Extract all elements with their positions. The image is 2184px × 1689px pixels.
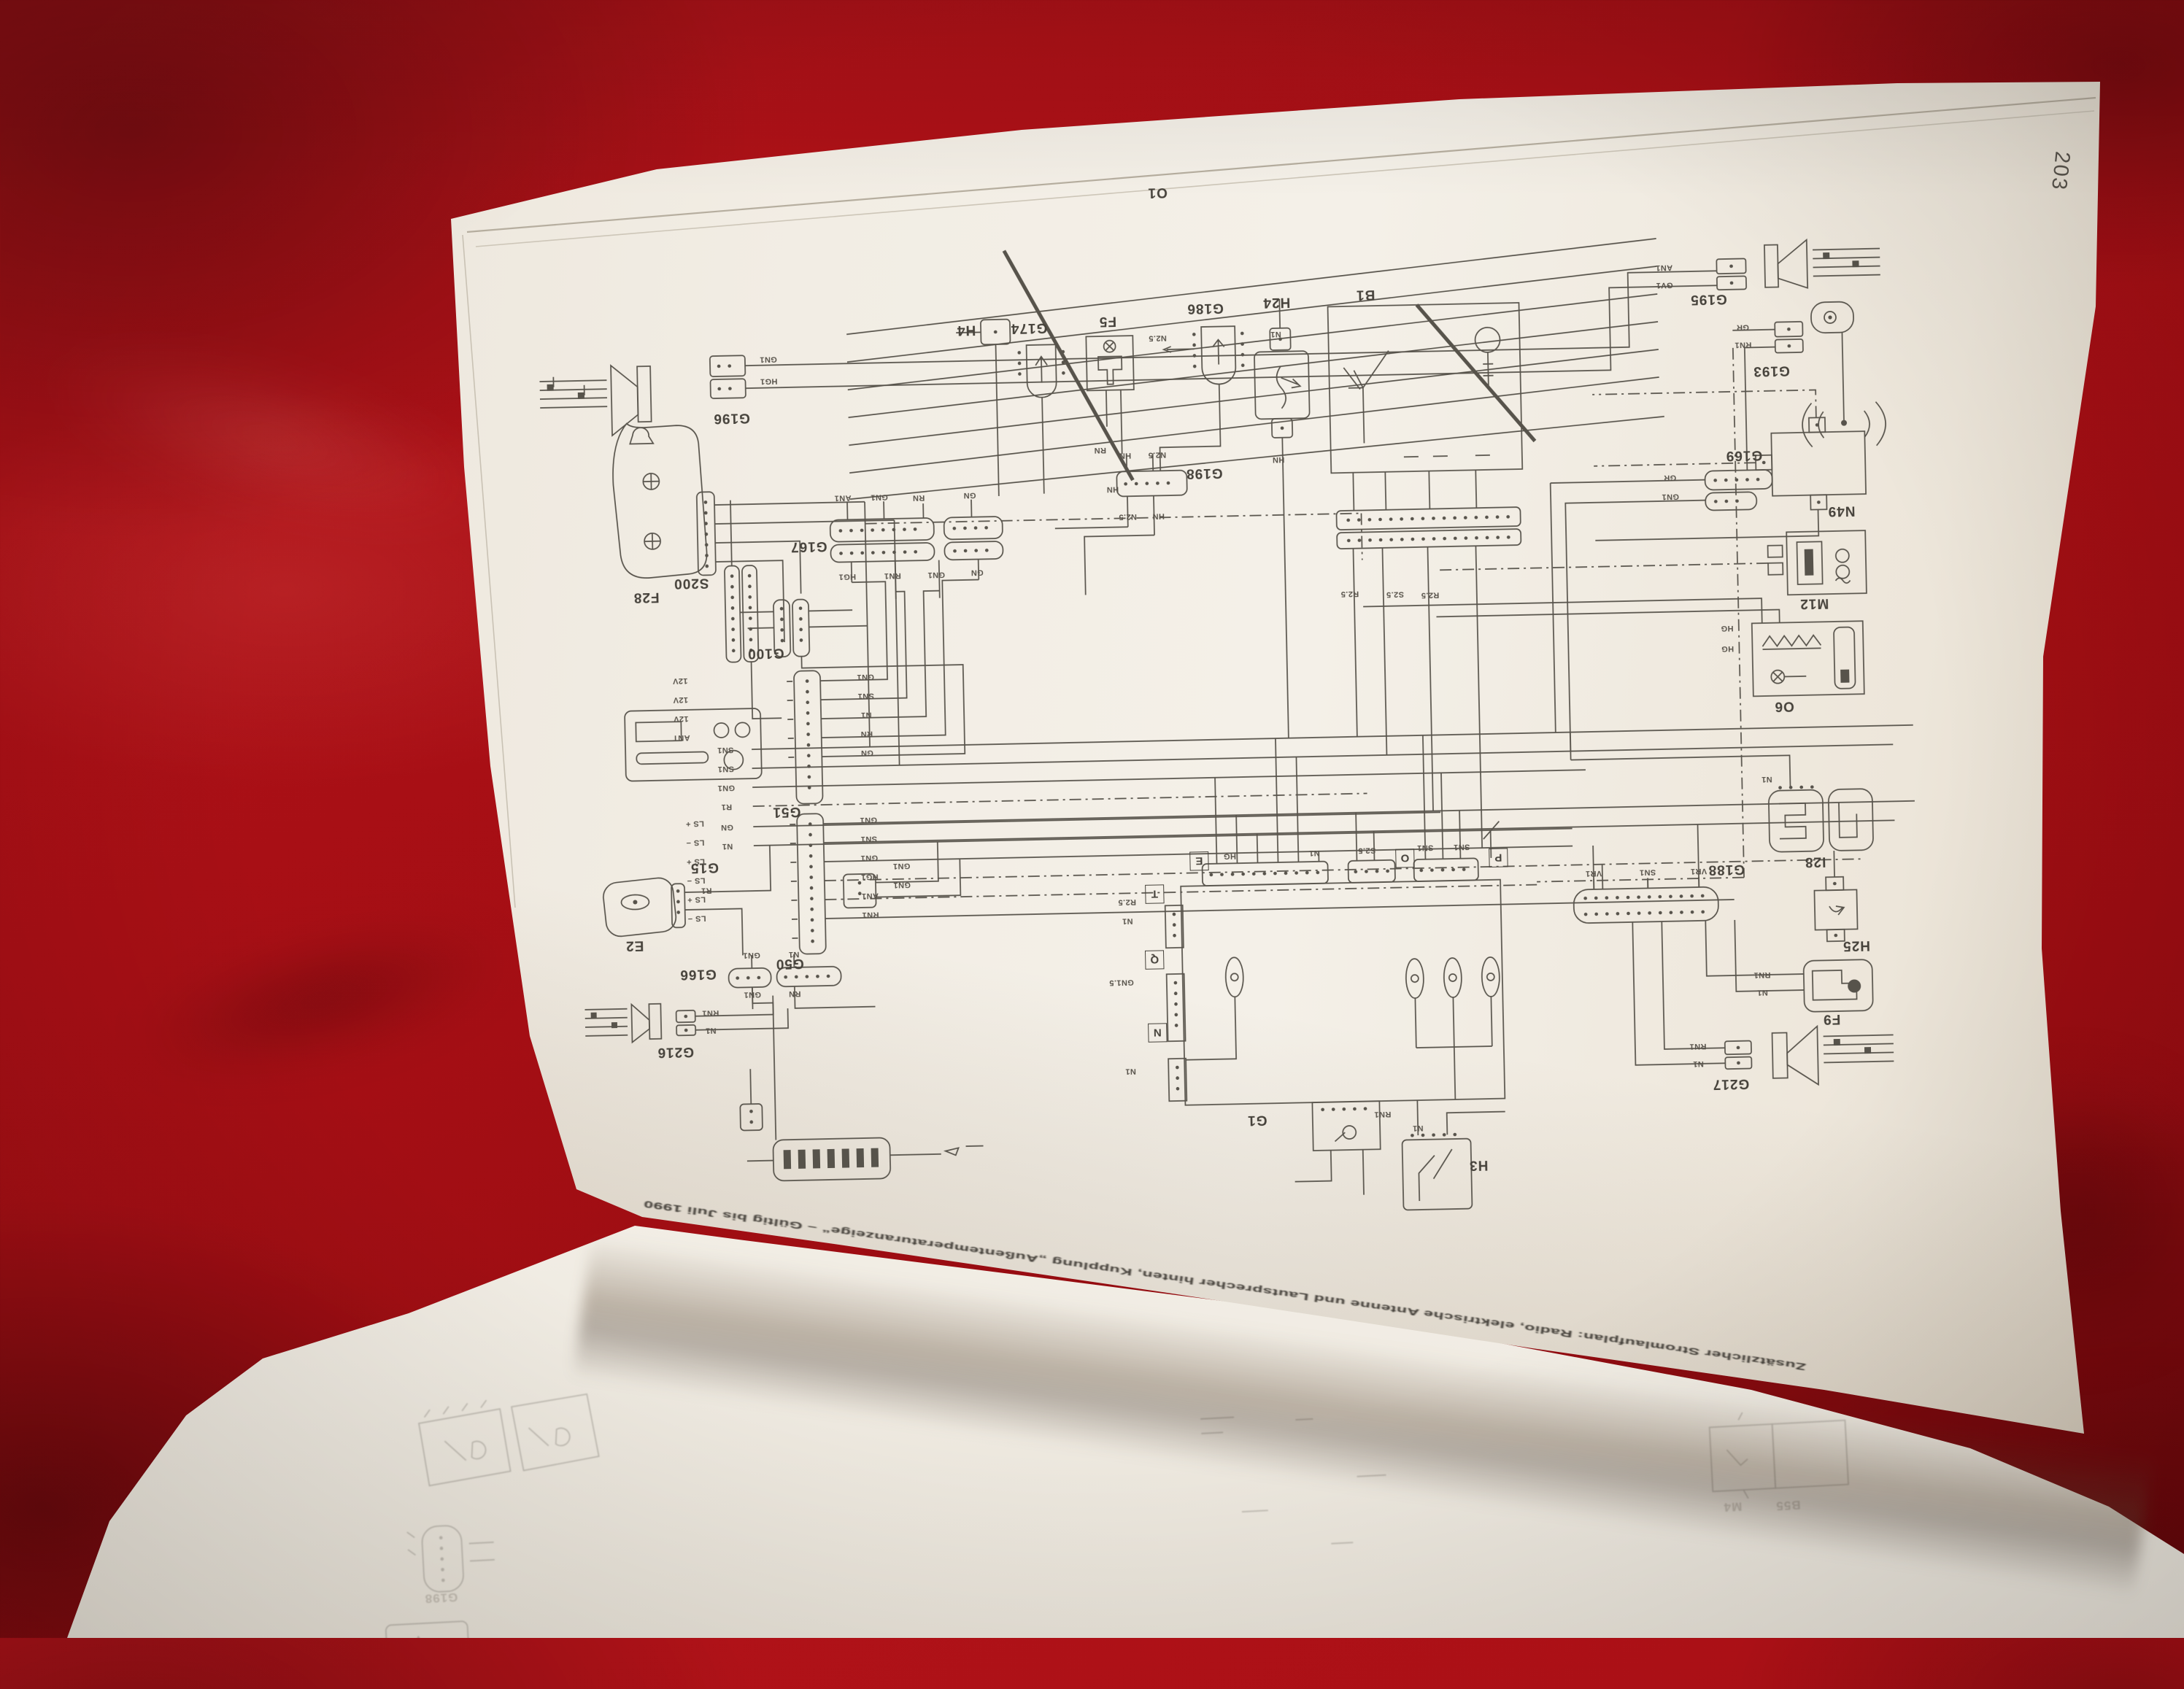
component-label: E2 bbox=[625, 937, 644, 954]
component-label: H24 bbox=[1262, 294, 1290, 311]
component-label: G186 bbox=[1186, 299, 1224, 316]
wire-label: N1 bbox=[861, 711, 872, 719]
diagram-labels: G196O1H4F28S200G100G167G51G50G15E2G166G2… bbox=[447, 63, 2106, 1280]
wire-label: GN1 bbox=[927, 571, 945, 579]
wire-label: 12V bbox=[673, 676, 688, 685]
wire-label: RN bbox=[789, 989, 801, 998]
section-letter: P bbox=[1489, 848, 1508, 867]
component-label: I28 bbox=[1805, 853, 1826, 870]
component-label: F28 bbox=[633, 589, 660, 606]
wire-label: GN1 bbox=[871, 492, 888, 501]
wire-label: S2.5 bbox=[1386, 590, 1404, 599]
wire-label: ANT bbox=[673, 733, 690, 742]
component-label: S200 bbox=[674, 574, 709, 591]
wire-label: N1 bbox=[788, 950, 799, 959]
wire-label: N1 bbox=[1413, 1124, 1424, 1132]
wire-label: HG1 bbox=[760, 376, 777, 385]
wire-label: RN1 bbox=[884, 571, 900, 580]
component-label: N49 bbox=[1827, 502, 1855, 519]
wire-label: LS − bbox=[687, 876, 705, 885]
wire-label: RN bbox=[1094, 446, 1106, 455]
wire-label: GN bbox=[963, 491, 976, 500]
wire-label: AN1 bbox=[1656, 263, 1672, 272]
wire-label: RN1 bbox=[862, 910, 879, 919]
component-label: G174 bbox=[1011, 319, 1048, 336]
wire-label: SN1 bbox=[1639, 867, 1656, 876]
component-label: G169 bbox=[1725, 447, 1762, 463]
wire-label: LS + bbox=[686, 819, 704, 828]
wire-label: HN bbox=[1106, 484, 1119, 493]
wire-label: RN1 bbox=[1374, 1110, 1391, 1118]
wire-label: GN1.5 bbox=[1109, 978, 1134, 987]
component-label: G188 bbox=[1708, 861, 1745, 878]
wire-label: N1 bbox=[1309, 849, 1320, 857]
wire-label: GN1 bbox=[860, 854, 878, 862]
wire-label: N1 bbox=[1122, 916, 1133, 925]
component-label: B1 bbox=[1356, 286, 1375, 303]
wire-label: GN bbox=[860, 749, 873, 757]
component-label: G195 bbox=[1690, 290, 1727, 307]
component-label: O6 bbox=[1774, 697, 1794, 714]
component-label: G100 bbox=[747, 644, 784, 661]
component-label: G51 bbox=[772, 803, 800, 820]
component-label: O1 bbox=[1147, 184, 1168, 201]
wire-label: GN1 bbox=[760, 355, 777, 363]
page-number: 203 bbox=[2046, 150, 2075, 193]
wire-label: GR bbox=[1664, 473, 1677, 482]
wire-label: SN1 bbox=[860, 835, 877, 843]
wire-label: HN bbox=[1152, 511, 1165, 520]
wire-label: SN1 bbox=[1454, 843, 1470, 851]
wire-label: R2.5 bbox=[1421, 590, 1439, 600]
photo-scene: { "page": { "number": "203" }, "caption"… bbox=[0, 0, 2184, 1638]
section-letter: E bbox=[1189, 851, 1209, 871]
wire-label: N1 bbox=[1762, 775, 1772, 784]
wire-label: GN1 bbox=[893, 881, 911, 889]
wire-label: N1 bbox=[1125, 1067, 1136, 1075]
wire-label: RN bbox=[860, 730, 873, 738]
wire-label: R2.5 bbox=[1340, 590, 1359, 599]
wire-label: LS + bbox=[687, 894, 706, 904]
component-label: F9 bbox=[1823, 1010, 1841, 1027]
wire-label: GN1 bbox=[857, 673, 874, 681]
wire-label: LS + bbox=[687, 857, 705, 866]
wire-label: GV1 bbox=[1656, 281, 1672, 290]
wire-label: RN1 bbox=[1753, 970, 1770, 979]
wire-label: AN1 bbox=[834, 493, 851, 502]
wire-label: RN1 bbox=[1689, 1042, 1706, 1051]
wire-label: GN1 bbox=[717, 784, 735, 792]
faint-component-label: B55 bbox=[1775, 1497, 1801, 1513]
component-label: H25 bbox=[1842, 937, 1870, 954]
component-label: G166 bbox=[679, 965, 717, 982]
wire-label: 12V bbox=[673, 695, 688, 704]
wire-label: GN1 bbox=[744, 990, 761, 999]
wire-label: S2.5 bbox=[1358, 846, 1375, 855]
component-label: F5 bbox=[1099, 313, 1117, 330]
component-label: G193 bbox=[1753, 362, 1790, 379]
wire-label: RN1 bbox=[702, 1008, 719, 1017]
component-label: G1 bbox=[1247, 1111, 1267, 1128]
wire-label: GN1 bbox=[743, 951, 760, 959]
wire-label: HN bbox=[1119, 451, 1131, 460]
component-label: H4 bbox=[957, 322, 976, 339]
wire-label: N1 bbox=[1757, 988, 1768, 997]
component-label: G198 bbox=[1186, 465, 1223, 482]
wire-label: LS − bbox=[686, 838, 704, 847]
section-letter: T bbox=[1145, 884, 1165, 904]
wire-label: HG1 bbox=[838, 572, 856, 581]
component-label: G216 bbox=[657, 1043, 694, 1060]
component-label: H3 bbox=[1469, 1156, 1489, 1173]
wire-label: GN bbox=[721, 823, 734, 832]
wiring-diagram: G196O1H4F28S200G100G167G51G50G15E2G166G2… bbox=[447, 63, 2106, 1280]
wire-label: GR bbox=[1736, 322, 1749, 331]
wire-label: N1 bbox=[1270, 330, 1281, 339]
wire-label: HG bbox=[1721, 644, 1735, 653]
wire-label: GN bbox=[971, 568, 984, 576]
wire-label: LS − bbox=[687, 913, 706, 923]
faint-component-label: M4 bbox=[1723, 1499, 1743, 1514]
wire-label: SN1 bbox=[717, 746, 734, 754]
wire-label: GN1 bbox=[1662, 492, 1679, 500]
wire-label: R1 bbox=[721, 803, 732, 811]
wire-label: SN1 bbox=[857, 692, 874, 700]
wire-label: AN1 bbox=[862, 892, 879, 900]
wire-label: VR1 bbox=[1690, 867, 1707, 876]
wire-label: N1 bbox=[722, 842, 733, 851]
component-label: G196 bbox=[713, 409, 750, 426]
section-letter: N bbox=[1148, 1023, 1168, 1043]
wire-label: R1 bbox=[701, 886, 712, 894]
wire-label: HN bbox=[1272, 455, 1284, 464]
wire-label: SN1 bbox=[1417, 843, 1434, 852]
component-label: G217 bbox=[1713, 1075, 1750, 1092]
wire-label: HG bbox=[1224, 851, 1237, 860]
wire-label: N2.5 bbox=[1148, 450, 1166, 460]
wire-label: HG1 bbox=[861, 873, 879, 881]
section-letter: Q bbox=[1145, 950, 1165, 970]
faint-component-label: G198 bbox=[424, 1590, 458, 1606]
wire-label: N1 bbox=[1693, 1059, 1704, 1068]
wire-label: RN1 bbox=[1735, 340, 1751, 349]
wire-label: SN1 bbox=[717, 765, 734, 773]
wire-label: HG bbox=[1721, 624, 1734, 633]
component-label: M12 bbox=[1799, 595, 1829, 611]
wire-label: VR1 bbox=[1585, 869, 1602, 878]
wire-label: GN1 bbox=[892, 862, 910, 870]
wire-label: GN1 bbox=[860, 816, 877, 824]
wire-label: 12V bbox=[674, 714, 689, 723]
wire-label: N2.5 bbox=[1149, 333, 1167, 343]
wire-label: N1 bbox=[706, 1026, 717, 1035]
wire-label: N2.5 bbox=[1119, 512, 1137, 522]
section-letter: O bbox=[1395, 849, 1415, 868]
wire-label: R2.5 bbox=[1118, 897, 1136, 907]
wire-label: RN bbox=[912, 493, 925, 502]
component-label: G167 bbox=[790, 538, 827, 554]
